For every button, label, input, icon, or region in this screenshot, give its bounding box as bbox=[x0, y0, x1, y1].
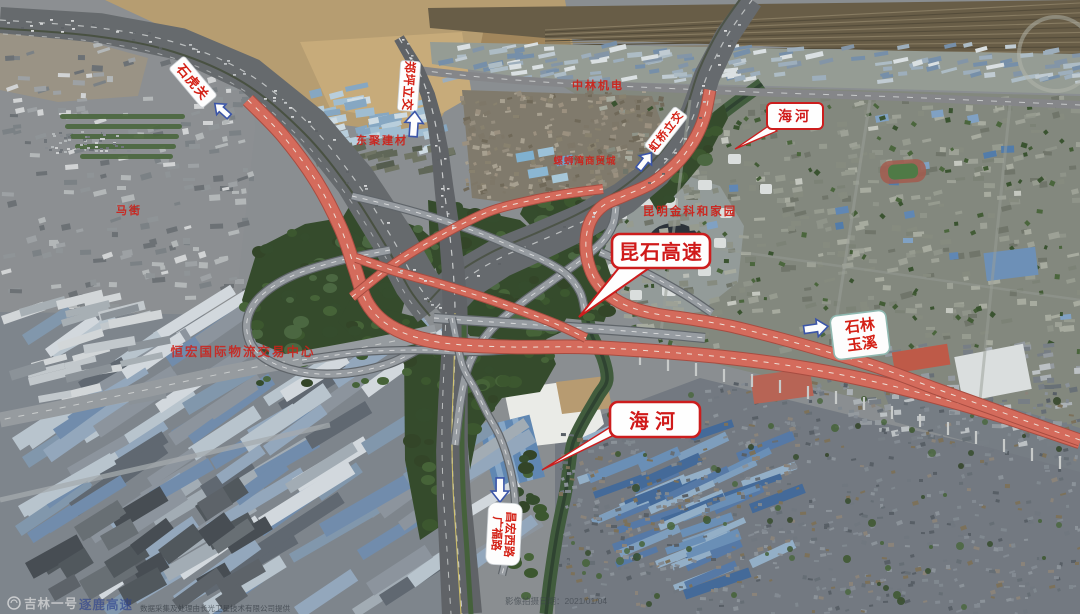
svg-text:玉溪: 玉溪 bbox=[846, 333, 879, 355]
svg-text:螺蛳湾商贸城: 螺蛳湾商贸城 bbox=[553, 155, 616, 167]
svg-text:中林机电: 中林机电 bbox=[572, 78, 624, 92]
svg-text:影像拍摄日期：2021/01/04: 影像拍摄日期：2021/01/04 bbox=[505, 596, 607, 606]
svg-text:恒宏国际物流交易中心: 恒宏国际物流交易中心 bbox=[170, 344, 315, 359]
svg-text:昆明金科和家园: 昆明金科和家园 bbox=[643, 204, 738, 218]
svg-text:逐鹿高速: 逐鹿高速 bbox=[79, 597, 133, 612]
svg-text:马街: 马街 bbox=[116, 203, 142, 217]
svg-text:数据采集及处理由长光卫星技术有限公司提供: 数据采集及处理由长光卫星技术有限公司提供 bbox=[140, 603, 290, 613]
svg-text:海河: 海河 bbox=[629, 409, 681, 433]
svg-text:海河: 海河 bbox=[778, 108, 812, 124]
svg-text:昆石高速: 昆石高速 bbox=[619, 240, 703, 264]
svg-text:东聚建材: 东聚建材 bbox=[356, 133, 408, 147]
svg-text:吉林一号: 吉林一号 bbox=[24, 596, 78, 611]
